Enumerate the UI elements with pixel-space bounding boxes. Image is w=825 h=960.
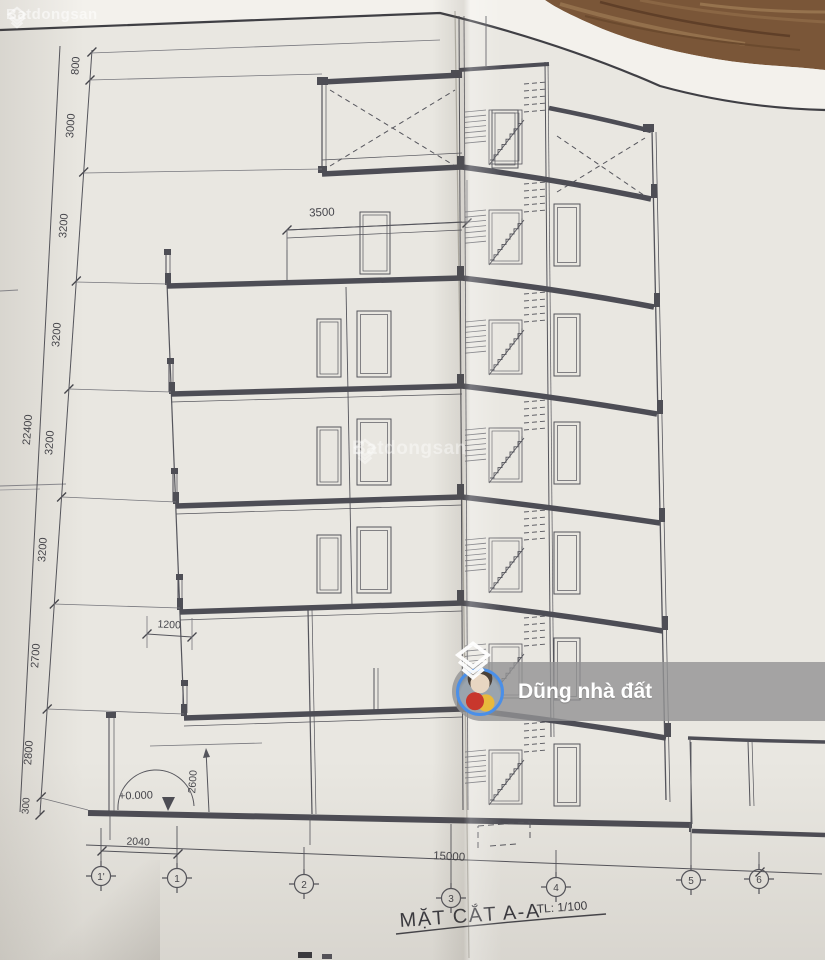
svg-text:1': 1' xyxy=(97,872,105,883)
svg-text:4: 4 xyxy=(553,883,559,894)
dim-3200-b: 3200 xyxy=(50,322,64,347)
svg-text:2: 2 xyxy=(301,880,307,891)
dim-3200-d: 3200 xyxy=(36,537,50,562)
agent-name: Dũng nhà đất xyxy=(518,680,652,704)
dim-2040: 2040 xyxy=(126,836,150,849)
dim-15000: 15000 xyxy=(433,850,466,864)
svg-text:6: 6 xyxy=(756,875,762,886)
dim-2700: 2700 xyxy=(29,643,43,668)
photo-of-section-drawing: 800 3000 3200 3200 3200 3200 2700 2800 3… xyxy=(0,0,825,960)
svg-text:5: 5 xyxy=(688,876,694,887)
dim-1200: 1200 xyxy=(157,618,181,631)
dim-22400: 22400 xyxy=(21,414,35,445)
dim-3500: 3500 xyxy=(309,207,335,220)
dim-3200-c: 3200 xyxy=(43,430,57,455)
dim-2600: 2600 xyxy=(186,770,200,794)
dim-2800: 2800 xyxy=(22,740,36,765)
svg-text:3: 3 xyxy=(448,894,454,905)
dim-3000: 3000 xyxy=(64,113,78,138)
dim-3200-a: 3200 xyxy=(57,213,71,238)
agent-watermark-badge: Dũng nhà đất xyxy=(452,662,825,721)
dim-300: 300 xyxy=(20,797,32,815)
section-drawing: 800 3000 3200 3200 3200 3200 2700 2800 3… xyxy=(0,0,825,960)
brand-logo-icon xyxy=(452,640,494,684)
level-zero-label: +0.000 xyxy=(119,789,153,802)
dim-800: 800 xyxy=(69,56,82,75)
svg-text:1: 1 xyxy=(174,874,180,885)
